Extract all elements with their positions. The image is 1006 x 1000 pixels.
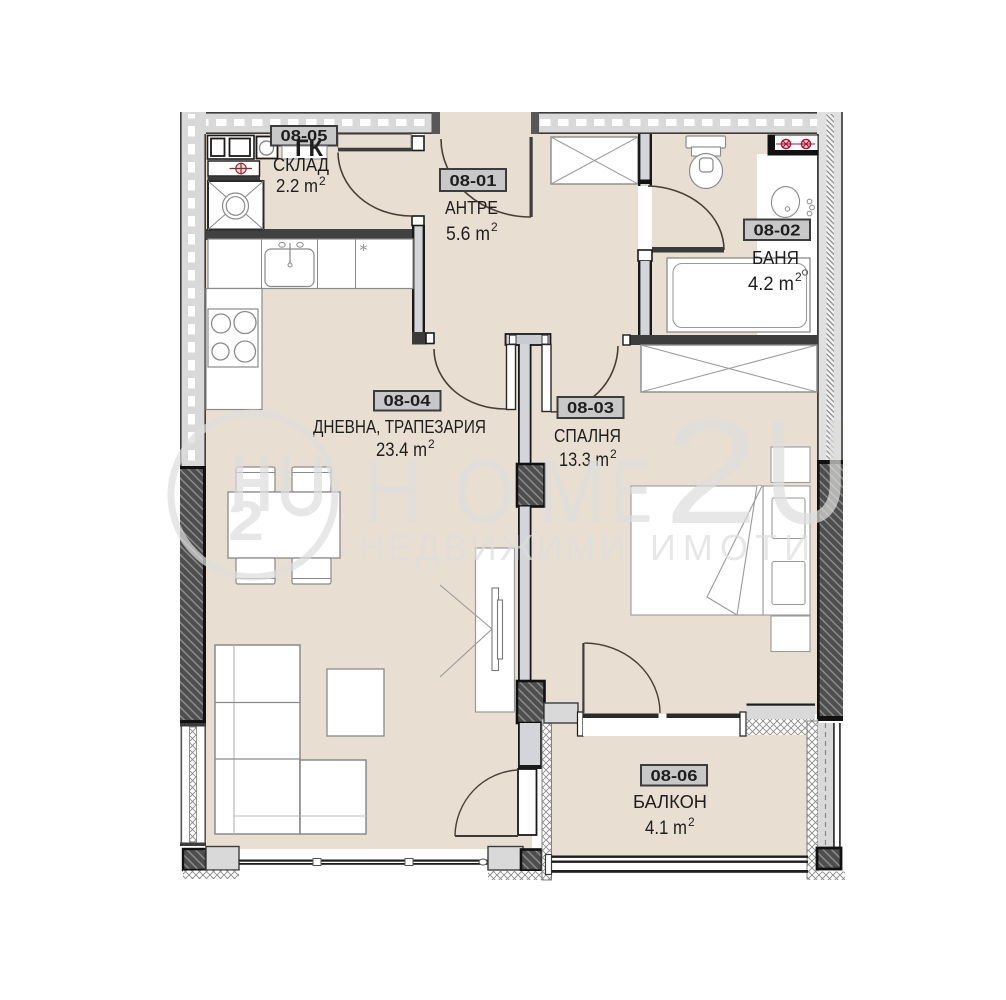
svg-text:БАНЯ: БАНЯ bbox=[752, 248, 799, 268]
svg-text:08-04: 08-04 bbox=[384, 393, 431, 410]
svg-text:08-01: 08-01 bbox=[450, 173, 497, 190]
svg-text:2: 2 bbox=[795, 270, 802, 284]
svg-text:08-02: 08-02 bbox=[754, 223, 801, 240]
svg-text:4.1 m: 4.1 m bbox=[645, 818, 687, 839]
svg-text:Н: Н bbox=[362, 441, 423, 541]
svg-text:НЕДВИЖИМИ: НЕДВИЖИМИ bbox=[359, 527, 625, 568]
svg-text:2: 2 bbox=[228, 489, 264, 552]
svg-text:СКЛАД: СКЛАД bbox=[273, 155, 329, 175]
svg-text:Е: Е bbox=[612, 441, 652, 541]
svg-text:2: 2 bbox=[319, 174, 326, 188]
svg-text:АНТРЕ: АНТРЕ bbox=[445, 198, 498, 218]
svg-text:2: 2 bbox=[688, 815, 695, 829]
svg-text:5.6 m: 5.6 m bbox=[446, 224, 490, 245]
svg-text:08-06: 08-06 bbox=[651, 768, 698, 785]
svg-text:М: М bbox=[538, 441, 606, 541]
svg-text:2: 2 bbox=[428, 437, 435, 451]
svg-text:ДНЕВНА, ТРАПЕЗАРИЯ: ДНЕВНА, ТРАПЕЗАРИЯ bbox=[313, 417, 486, 437]
svg-text:2: 2 bbox=[491, 220, 498, 234]
svg-text:О: О bbox=[454, 441, 515, 541]
svg-text:08-03: 08-03 bbox=[567, 400, 614, 417]
svg-text:ИМОТИ: ИМОТИ bbox=[650, 527, 810, 568]
svg-text:4.2 m: 4.2 m bbox=[748, 274, 794, 295]
svg-text:2.2 m: 2.2 m bbox=[276, 176, 318, 196]
svg-text:БАЛКОН: БАЛКОН bbox=[633, 792, 707, 812]
